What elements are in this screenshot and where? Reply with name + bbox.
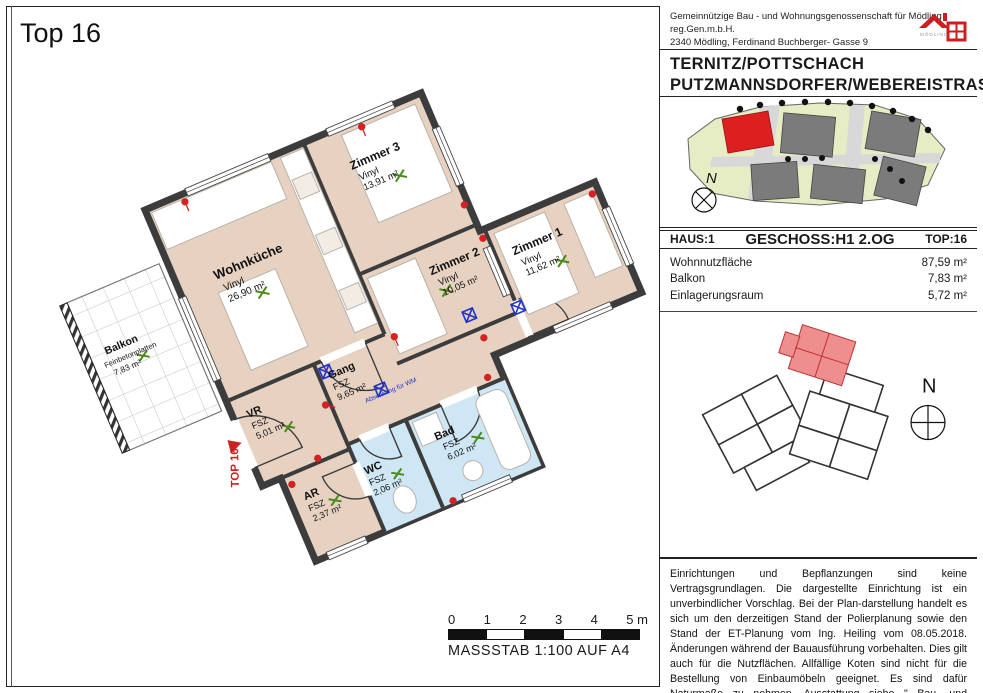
svg-text:TOP 16: TOP 16 xyxy=(229,448,242,487)
key-plan-highlight-unit xyxy=(775,320,856,385)
area-row: Balkon7,83 m² xyxy=(670,271,967,288)
area-row: Einlagerungsraum5,72 m² xyxy=(670,288,967,305)
scale-bar: 01 23 45 m MASSSTAB 1:100 AUF A4 xyxy=(448,612,648,659)
title-block-panel: Gemeinnützige Bau - und Wohnungsgenossen… xyxy=(659,6,977,687)
svg-text:N: N xyxy=(922,375,936,397)
company-logo: MÖDLING xyxy=(917,10,969,51)
svg-text:N: N xyxy=(706,170,717,187)
page-title: Top 16 xyxy=(20,18,101,49)
scale-ticks: 01 23 45 m xyxy=(448,612,648,627)
unit-info-row: HAUS:1 GESCHOSS:H1 2.OG TOP:16 xyxy=(660,230,977,249)
project-title: TERNITZ/POTTSCHACH PUTZMANNSDORFER/WEBER… xyxy=(660,50,977,96)
geschoss-label: GESCHOSS:H1 2.OG xyxy=(715,231,926,248)
area-row: Wohnnutzfläche87,59 m² xyxy=(670,255,967,272)
floorplan-drawing: Wohnküche Vinyl 26,90 m² Zimmer 3 Vinyl … xyxy=(10,70,660,615)
project-line2: PUTZMANNSDORFER/WEBEREISTRASSE xyxy=(670,75,967,96)
top-label: TOP:16 xyxy=(925,232,967,246)
disclaimer-text: Einrichtungen und Bepflanzungen sind kei… xyxy=(660,558,977,693)
logo-text: MÖDLING xyxy=(920,31,948,37)
site-plan: N xyxy=(660,97,977,228)
key-plan: N xyxy=(660,312,977,558)
key-plan-units xyxy=(703,364,897,496)
haus-label: HAUS:1 xyxy=(670,232,715,246)
project-line1: TERNITZ/POTTSCHACH xyxy=(670,54,967,75)
scale-caption: MASSSTAB 1:100 AUF A4 xyxy=(448,643,648,659)
plan-sheet: Top 16 xyxy=(0,0,983,693)
area-table: Wohnnutzfläche87,59 m² Balkon7,83 m² Ein… xyxy=(660,249,977,312)
key-compass: N xyxy=(911,375,945,439)
scale-bar-segments xyxy=(448,629,640,640)
company-header: Gemeinnützige Bau - und Wohnungsgenossen… xyxy=(660,6,977,50)
site-highlight-building xyxy=(722,111,774,153)
